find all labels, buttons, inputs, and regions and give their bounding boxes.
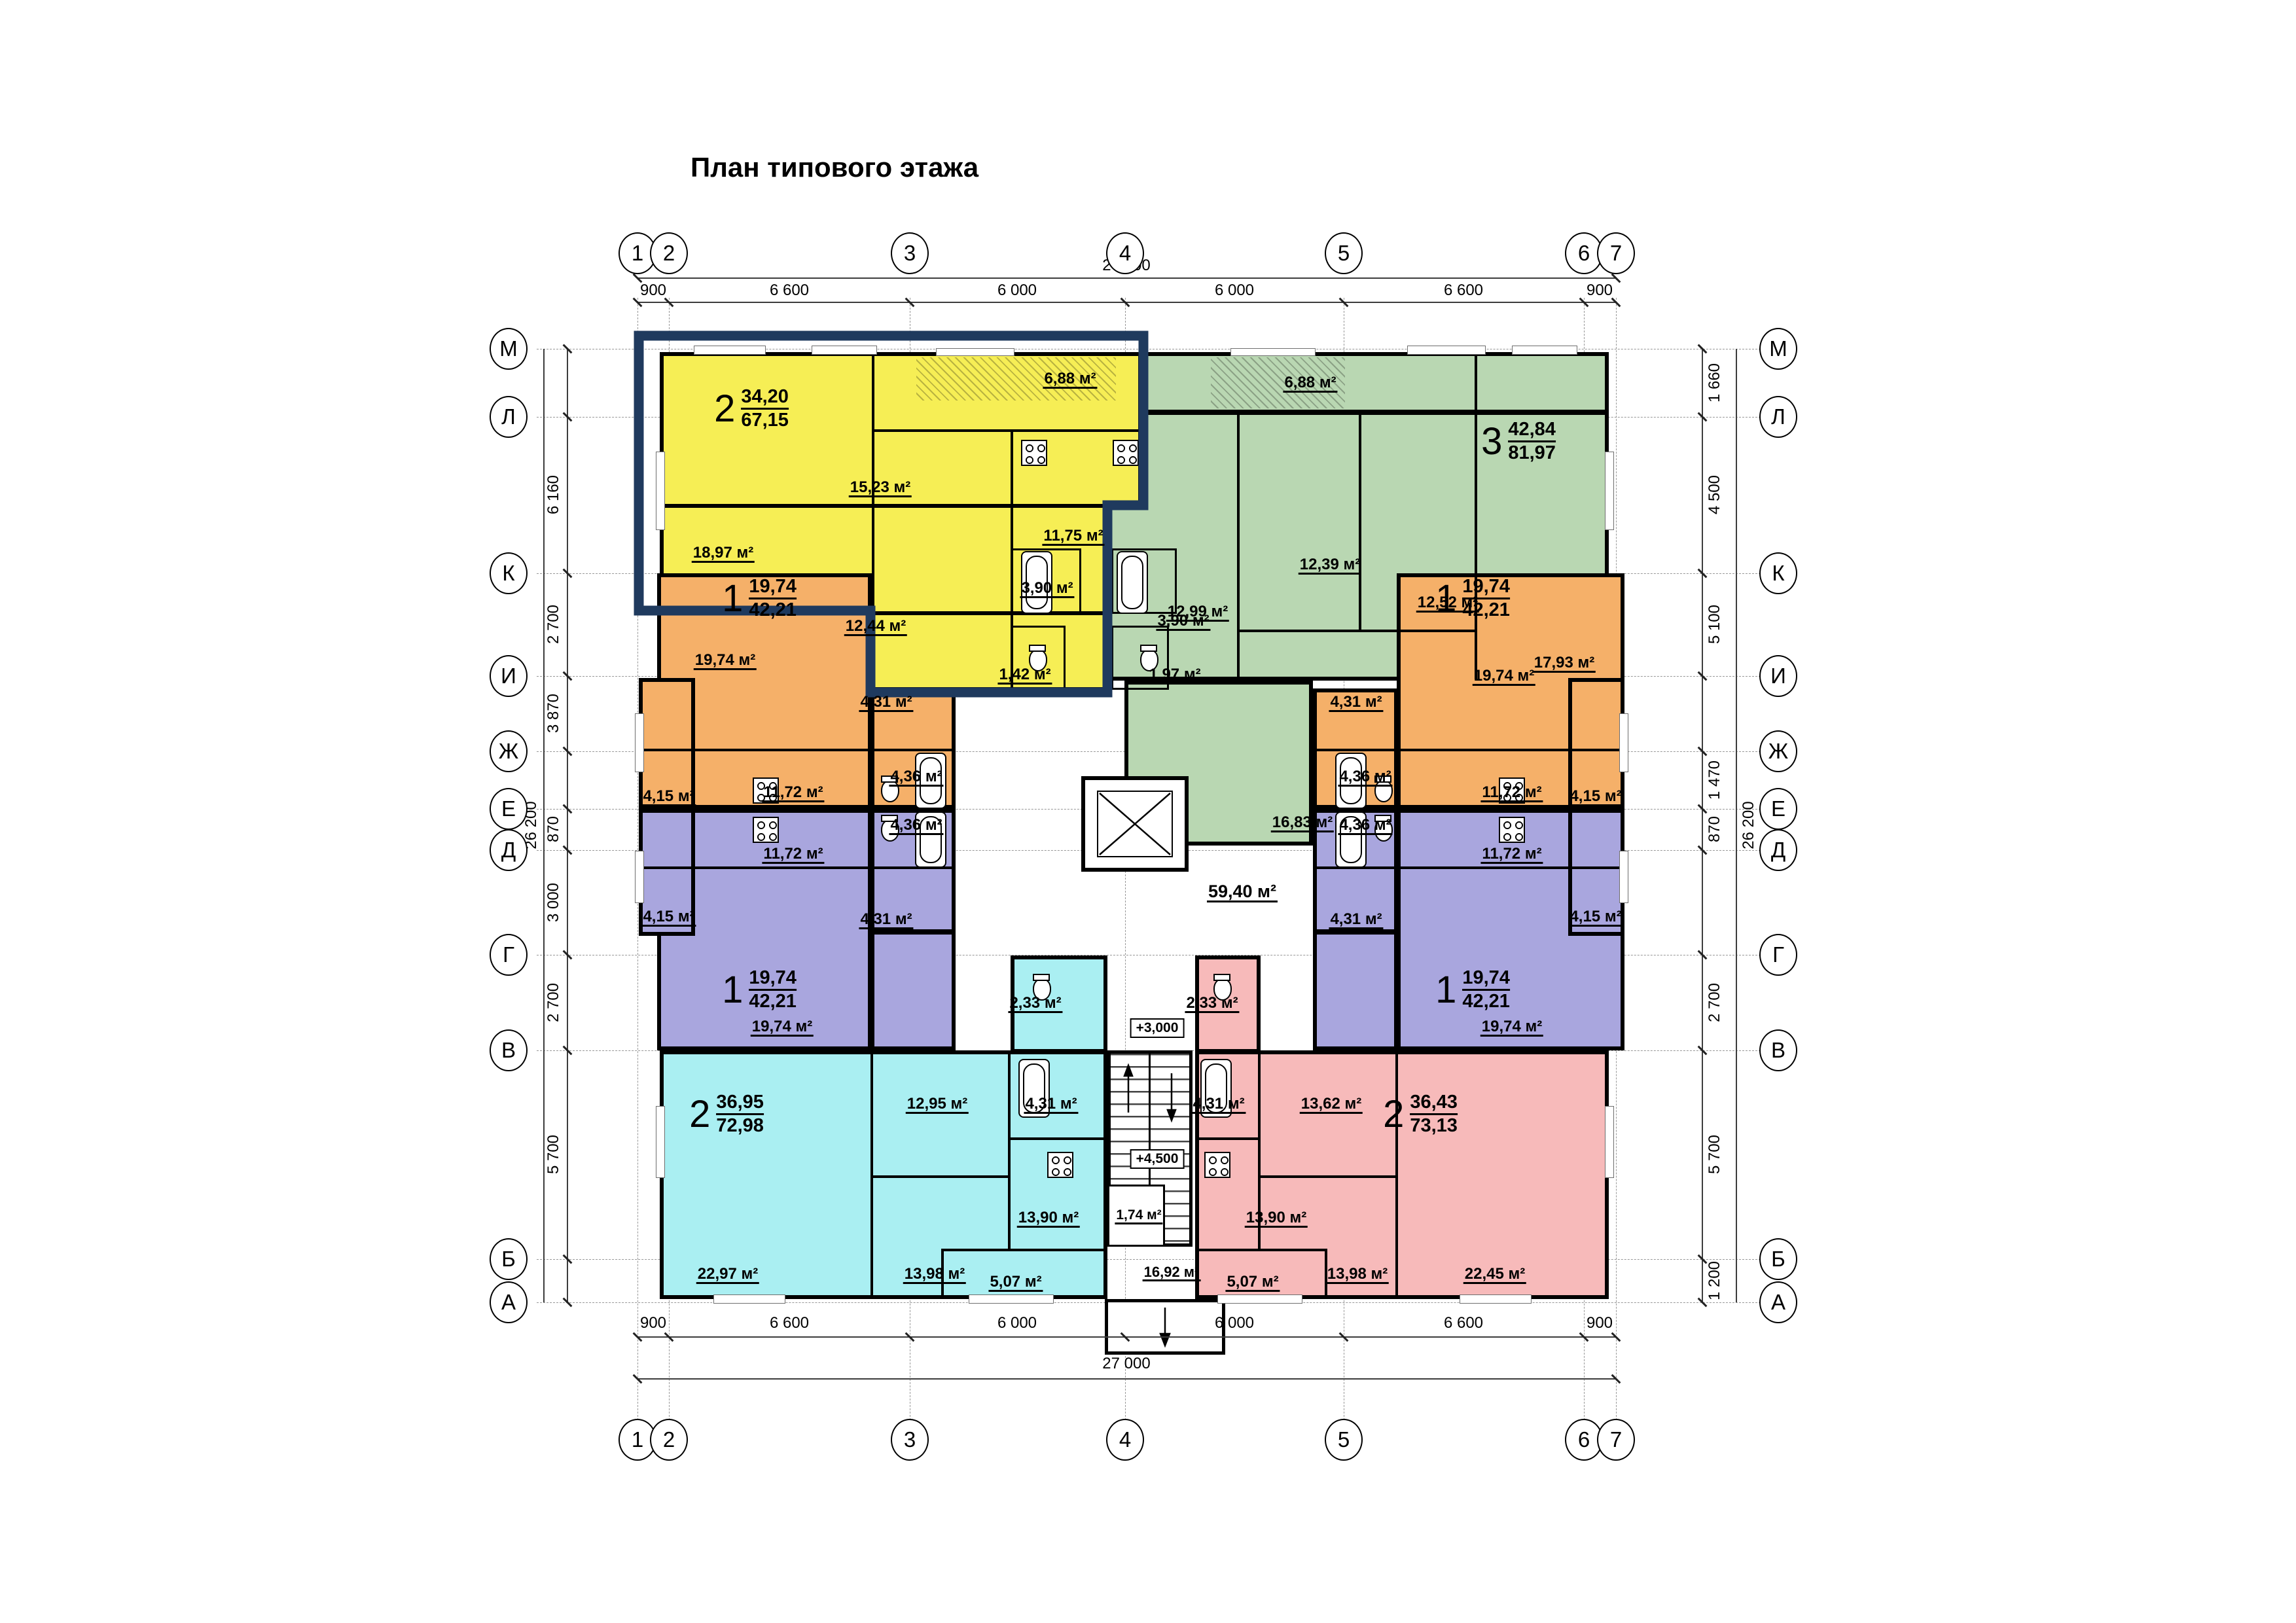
- living-area: 19,74: [1462, 967, 1510, 991]
- dim: 1 200: [1706, 1261, 1724, 1300]
- window: [1407, 346, 1486, 355]
- window: [635, 851, 644, 903]
- wall: [1237, 411, 1240, 681]
- living-area: 19,74: [749, 576, 797, 599]
- axis-bubble-left-e: Е: [490, 788, 528, 830]
- wall: [1008, 1050, 1011, 1250]
- living-area: 36,43: [1410, 1092, 1458, 1115]
- axis-bubble-bottom-5: 5: [1325, 1419, 1363, 1461]
- axis-bubble-right-i: И: [1759, 655, 1797, 697]
- room-area-label: 4,15 м²: [641, 788, 696, 806]
- apartment-label-pink: 2 36,4373,13: [1383, 1092, 1458, 1137]
- dim: 5 100: [1706, 605, 1724, 644]
- room-count: 2: [714, 387, 735, 431]
- bathtub-icon: [1117, 551, 1148, 614]
- room-count: 3: [1481, 419, 1502, 463]
- stove-icon: [1113, 440, 1139, 466]
- stove-icon: [753, 817, 779, 843]
- total-area: 72,98: [716, 1115, 764, 1137]
- room-area-label: 13,90 м²: [1017, 1209, 1080, 1228]
- wall: [1395, 1050, 1398, 1299]
- room-area-label: 3,90 м²: [1156, 613, 1210, 631]
- apartment-label-cyan: 2 36,9572,98: [689, 1092, 764, 1137]
- axis-bubble-bottom-3: 3: [891, 1419, 929, 1461]
- dim: 6 000: [997, 1314, 1037, 1332]
- window: [1605, 452, 1614, 530]
- room-area-label: 17,93 м²: [1533, 654, 1596, 673]
- window: [1460, 1294, 1532, 1304]
- axis-bubble-left-l: Л: [490, 396, 528, 438]
- room-area-label: 11,75 м²: [1042, 527, 1104, 546]
- room-area-label: 19,74 м²: [1480, 1018, 1543, 1037]
- room-area-label: 11,72 м²: [1480, 784, 1543, 802]
- dim-line-right-total: [1736, 349, 1737, 1302]
- room-area-label: 12,95 м²: [906, 1096, 969, 1114]
- axis-bubble-right-zh: Ж: [1759, 730, 1797, 772]
- room-area-label: 4,31 м²: [1329, 694, 1383, 712]
- stove-icon: [1047, 1152, 1073, 1178]
- dim: 6 160: [545, 475, 563, 514]
- axis-bubble-right-b: Б: [1759, 1238, 1797, 1280]
- axis-bubble-right-k: К: [1759, 552, 1797, 594]
- apartment-label-orange-left: 1 19,7442,21: [722, 576, 797, 622]
- level-mark-down: +4,500: [1130, 1149, 1185, 1169]
- room-area-label: 13,98 м²: [903, 1266, 966, 1284]
- window: [694, 346, 766, 355]
- axis-bubble-left-m: М: [490, 328, 528, 370]
- lobby-area-label: 16,92 м²: [1143, 1264, 1201, 1281]
- wall: [1011, 1137, 1107, 1140]
- elevator-cabin: [1097, 791, 1173, 857]
- window: [969, 1294, 1054, 1304]
- axis-bubble-right-d: Д: [1759, 829, 1797, 871]
- room-area-label: 4,15 м²: [1568, 908, 1623, 927]
- axis-bubble-right-a: А: [1759, 1281, 1797, 1323]
- living-area: 19,74: [749, 967, 797, 991]
- dim: 6 000: [1215, 281, 1254, 300]
- room-area-label: 3,90 м²: [1020, 580, 1074, 598]
- dim: 5 700: [1706, 1135, 1724, 1174]
- axis-bubble-left-a: А: [490, 1281, 528, 1323]
- room-area-label: 4,15 м²: [641, 908, 696, 927]
- wall: [870, 1050, 873, 1299]
- axis-bubble-right-g: Г: [1759, 934, 1797, 976]
- dim: 2 700: [1706, 983, 1724, 1022]
- room-area-label: 1,97 м²: [1147, 666, 1202, 685]
- dim: 5 700: [545, 1135, 563, 1174]
- stove-icon: [1021, 440, 1047, 466]
- dim: 900: [640, 281, 666, 300]
- room-area-label: 12,44 м²: [844, 618, 907, 636]
- dim: 900: [640, 1314, 666, 1332]
- dim: 6 000: [997, 281, 1037, 300]
- dim: 3 870: [545, 694, 563, 733]
- axis-bubble-top-7: 7: [1597, 232, 1635, 274]
- window: [936, 348, 1014, 356]
- room-area-label: 16,83 м²: [1271, 814, 1334, 832]
- room-area-label: 5,07 м²: [1225, 1274, 1280, 1292]
- total-area: 42,21: [1462, 991, 1510, 1012]
- dim: 6 600: [770, 1314, 809, 1332]
- wall: [872, 429, 1142, 432]
- page-title: План типового этажа: [691, 152, 978, 183]
- window: [1512, 346, 1577, 355]
- dim: 3 000: [545, 883, 563, 922]
- room-area-label: 19,74 м²: [1473, 668, 1535, 686]
- dim-bottom-total: 27 000: [1102, 1355, 1150, 1373]
- axis-bubble-top-4: 4: [1106, 232, 1144, 274]
- room-area-label: 4,15 м²: [1568, 788, 1623, 806]
- window: [1605, 1106, 1614, 1178]
- axis-bubble-bottom-7: 7: [1597, 1419, 1635, 1461]
- axis-bubble-left-i: И: [490, 655, 528, 697]
- room-count: 1: [1435, 968, 1456, 1012]
- dim: 6 600: [1444, 281, 1483, 300]
- window: [1217, 1294, 1302, 1304]
- room-count: 2: [689, 1092, 710, 1136]
- room-count: 1: [722, 577, 743, 620]
- room-area-label: 6,88 м²: [1283, 374, 1337, 393]
- apartment-purple-right-room[interactable]: [1313, 931, 1398, 1050]
- dim-line-top-total: [637, 277, 1616, 279]
- stove-icon: [1499, 817, 1525, 843]
- dim-line-right-segs: [1702, 349, 1703, 1302]
- room-area-label: 4,36 м²: [1338, 768, 1392, 787]
- room-area-label: 11,72 м²: [762, 846, 824, 864]
- room-area-label: 4,36 м²: [889, 817, 943, 835]
- axis-bubble-left-v: В: [490, 1029, 528, 1071]
- total-area: 42,21: [749, 599, 797, 621]
- room-area-label: 4,31 м²: [1024, 1096, 1078, 1114]
- window: [635, 713, 644, 772]
- room-area-label: 13,62 м²: [1300, 1096, 1363, 1114]
- dim: 2 700: [545, 983, 563, 1022]
- axis-bubble-left-k: К: [490, 552, 528, 594]
- dim: 900: [1587, 281, 1613, 300]
- axis-bubble-right-e: Е: [1759, 788, 1797, 830]
- axis-bubble-left-zh: Ж: [490, 730, 528, 772]
- axis-bubble-top-3: 3: [891, 232, 929, 274]
- room-area-label: 4,36 м²: [889, 768, 943, 787]
- dim: 6 600: [1444, 1314, 1483, 1332]
- window: [656, 452, 665, 530]
- room-area-label: 1,42 м²: [997, 666, 1052, 685]
- axis-bubble-bottom-2: 2: [650, 1419, 688, 1461]
- wall: [1237, 630, 1477, 632]
- wall: [1313, 749, 1624, 751]
- dim: 6 600: [770, 281, 809, 300]
- room-area-label: 19,74 м²: [694, 652, 757, 670]
- room-area-label: 12,52 м²: [1416, 594, 1479, 613]
- total-area: 81,97: [1508, 442, 1556, 464]
- living-area: 34,20: [741, 386, 789, 410]
- window: [1230, 348, 1316, 356]
- room-area-label: 4,31 м²: [1329, 911, 1383, 929]
- window: [713, 1294, 785, 1304]
- room-area-label: 4,36 м²: [1338, 817, 1392, 835]
- wall: [639, 749, 956, 751]
- room-area-label: 13,90 м²: [1245, 1209, 1308, 1228]
- room-area-label: 2,33 м²: [1008, 995, 1062, 1013]
- apartment-label-yellow: 2 34,2067,15: [714, 386, 789, 432]
- room-area-label: 15,23 м²: [849, 479, 912, 497]
- total-area: 73,13: [1410, 1115, 1458, 1137]
- dim-right-total: 26 200: [1740, 801, 1758, 849]
- room-area-label: 12,39 м²: [1299, 556, 1361, 575]
- room-area-label: 2,33 м²: [1185, 995, 1239, 1013]
- wall: [872, 1175, 1011, 1178]
- axis-bubble-left-b: Б: [490, 1238, 528, 1280]
- room-area-label: 22,45 м²: [1463, 1266, 1526, 1284]
- dim: 870: [545, 816, 563, 842]
- living-area: 42,84: [1508, 419, 1556, 442]
- window: [812, 346, 877, 355]
- entrance-vestibule[interactable]: [1105, 1299, 1225, 1355]
- dim: 900: [1587, 1314, 1613, 1332]
- room-area-label: 5,07 м²: [988, 1274, 1043, 1292]
- axis-bubble-top-5: 5: [1325, 232, 1363, 274]
- level-mark-up: +3,000: [1130, 1018, 1185, 1038]
- wall: [1359, 411, 1361, 632]
- axis-bubble-top-2: 2: [650, 232, 688, 274]
- total-area: 42,21: [749, 991, 797, 1012]
- wall: [1195, 1137, 1261, 1140]
- axis-bubble-bottom-4: 4: [1106, 1419, 1144, 1461]
- apartment-label-purple-right: 1 19,7442,21: [1435, 967, 1510, 1013]
- window: [656, 1106, 665, 1178]
- dim: 1 470: [1706, 760, 1724, 800]
- axis-bubble-right-m: М: [1759, 328, 1797, 370]
- apartment-label-purple-left: 1 19,7442,21: [722, 967, 797, 1013]
- dim: 6 000: [1215, 1314, 1254, 1332]
- room-area-label: 6,88 м²: [1043, 370, 1097, 389]
- axis-bubble-right-v: В: [1759, 1029, 1797, 1071]
- dim: 4 500: [1706, 475, 1724, 514]
- room-area-label: 18,97 м²: [692, 544, 755, 563]
- chute-area-label: 1,74 м²: [1115, 1208, 1162, 1224]
- wall: [942, 1249, 1107, 1251]
- room-area-label: 4,31 м²: [859, 694, 913, 712]
- total-area: 67,15: [741, 410, 789, 431]
- room-area-label: 19,74 м²: [751, 1018, 814, 1037]
- wall: [1259, 1175, 1398, 1178]
- room-area-label: 4,31 м²: [859, 911, 913, 929]
- corridor-area-label: 59,40 м²: [1207, 882, 1278, 902]
- apartment-label-green: 3 42,8481,97: [1481, 419, 1556, 465]
- wall: [639, 866, 956, 869]
- room-area-label: 11,72 м²: [762, 784, 824, 802]
- dim: 870: [1706, 816, 1724, 842]
- living-area: 36,95: [716, 1092, 764, 1115]
- axis-bubble-left-d: Д: [490, 829, 528, 871]
- axis-bubble-left-g: Г: [490, 934, 528, 976]
- window: [1619, 851, 1628, 903]
- window: [1619, 713, 1628, 772]
- stove-icon: [1204, 1152, 1230, 1178]
- room-area-label: 4,31 м²: [1191, 1096, 1246, 1114]
- dim-line-bottom-total: [637, 1378, 1616, 1380]
- room-area-label: 13,98 м²: [1326, 1266, 1389, 1284]
- dim: 1 660: [1706, 363, 1724, 402]
- floor-plan: План типового этажа: [0, 0, 2296, 1623]
- dim-line-left-segs: [567, 349, 568, 1302]
- room-area-label: 22,97 м²: [696, 1266, 759, 1284]
- room-count: 1: [722, 968, 743, 1012]
- wall: [1195, 1249, 1326, 1251]
- room-area-label: 11,72 м²: [1480, 846, 1543, 864]
- axis-bubble-right-l: Л: [1759, 396, 1797, 438]
- room-count: 2: [1383, 1092, 1404, 1136]
- dim: 2 700: [545, 605, 563, 644]
- apartment-pink-main[interactable]: [1195, 1050, 1609, 1299]
- apartment-purple-left-room[interactable]: [870, 931, 956, 1050]
